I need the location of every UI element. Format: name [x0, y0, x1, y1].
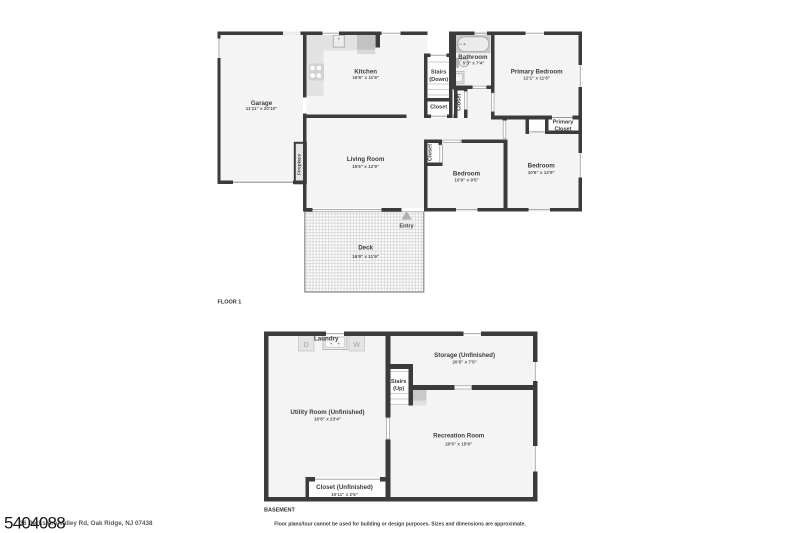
- svg-text:10'11" x 2'5": 10'11" x 2'5": [331, 492, 358, 497]
- svg-text:5'3" x 7'4": 5'3" x 7'4": [463, 61, 485, 66]
- svg-text:20'5" x 7'5": 20'5" x 7'5": [452, 360, 476, 365]
- svg-text:Deck: Deck: [358, 244, 373, 251]
- svg-text:12'1" x 11'6": 12'1" x 11'6": [523, 75, 550, 80]
- svg-text:Recreation Room: Recreation Room: [433, 433, 485, 440]
- svg-text:Laundry: Laundry: [314, 336, 339, 343]
- svg-text:Closet: Closet: [428, 144, 434, 161]
- svg-text:Closet (Unfinished): Closet (Unfinished): [316, 484, 373, 491]
- svg-text:(Up): (Up): [393, 386, 404, 392]
- svg-text:Living Room: Living Room: [347, 156, 385, 163]
- svg-text:Storage (Unfinished): Storage (Unfinished): [434, 352, 495, 359]
- svg-text:16'6" x 11'6": 16'6" x 11'6": [352, 75, 379, 80]
- svg-text:D: D: [304, 342, 309, 349]
- svg-text:Bedroom: Bedroom: [453, 170, 481, 177]
- svg-text:Primary: Primary: [553, 119, 575, 125]
- svg-text:11'11" x 20'10": 11'11" x 20'10": [246, 106, 278, 111]
- svg-text:Closet: Closet: [456, 94, 462, 111]
- svg-text:(Down): (Down): [429, 77, 448, 83]
- svg-text:Closet: Closet: [554, 127, 571, 133]
- svg-text:16'9" x 11'9": 16'9" x 11'9": [352, 254, 379, 259]
- svg-text:Stairs: Stairs: [391, 379, 407, 385]
- svg-text:10'6" x 12'9": 10'6" x 12'9": [528, 170, 555, 175]
- svg-text:Fireplace: Fireplace: [297, 154, 303, 175]
- svg-text:20'5" x 15'6": 20'5" x 15'6": [445, 441, 472, 446]
- svg-text:Stairs: Stairs: [431, 69, 447, 75]
- svg-text:Closet: Closet: [430, 105, 447, 111]
- svg-text:W: W: [353, 342, 360, 349]
- svg-text:Entry: Entry: [399, 223, 414, 229]
- svg-text:16'6" x 12'9": 16'6" x 12'9": [352, 164, 379, 169]
- svg-text:Bedroom: Bedroom: [528, 163, 556, 170]
- svg-text:16'8" x 23'4": 16'8" x 23'4": [314, 416, 341, 421]
- svg-text:10'9" x 9'5": 10'9" x 9'5": [454, 178, 478, 183]
- svg-text:Floor plans/tour cannot be use: Floor plans/tour cannot be used for buil…: [274, 522, 526, 528]
- svg-text:BASEMENT: BASEMENT: [264, 508, 296, 514]
- svg-text:Utility Room (Unfinished): Utility Room (Unfinished): [290, 409, 364, 416]
- svg-text:FLOOR 1: FLOOR 1: [218, 300, 242, 306]
- svg-text:5404088: 5404088: [4, 514, 65, 533]
